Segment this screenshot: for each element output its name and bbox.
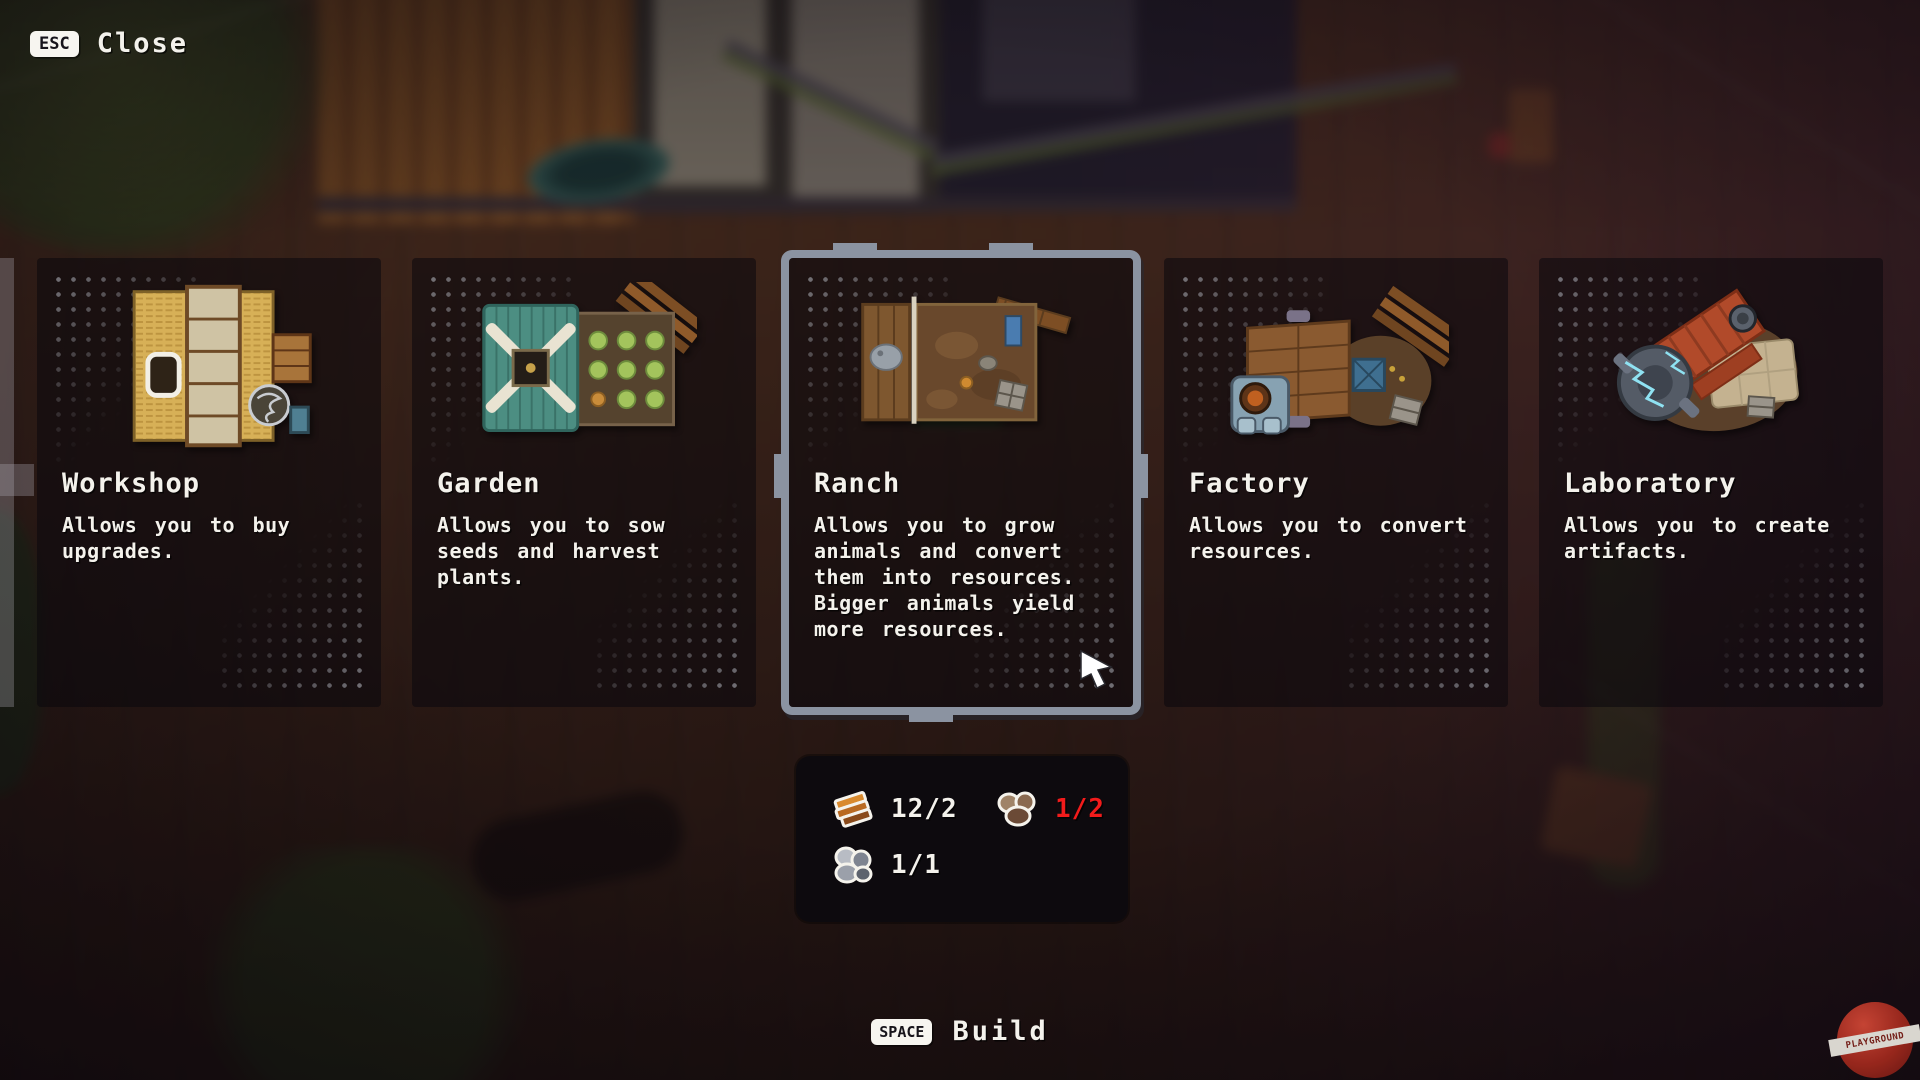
workshop-building-illustration xyxy=(37,272,381,462)
cost-item-stone: 1/1 xyxy=(830,842,941,888)
card-title: Factory xyxy=(1189,468,1310,499)
selection-frame-tab xyxy=(774,454,782,498)
card-title: Garden xyxy=(437,468,541,499)
gray-rocks-icon xyxy=(830,842,876,888)
card-description: Allows you to convert resources. xyxy=(1189,512,1490,564)
laboratory-building-illustration xyxy=(1539,272,1883,462)
close-button[interactable]: ESC Close xyxy=(30,28,188,59)
brown-rocks-icon xyxy=(994,786,1040,832)
factory-building-illustration xyxy=(1164,272,1508,462)
card-title: Ranch xyxy=(814,468,900,499)
garden-building-illustration xyxy=(412,272,756,462)
cost-item-hide: 1/2 xyxy=(994,786,1105,832)
card-title: Workshop xyxy=(62,468,200,499)
selection-frame-tab xyxy=(909,714,953,722)
wood-planks-icon xyxy=(830,786,876,832)
card-description: Allows you to grow animals and convert t… xyxy=(814,512,1115,642)
build-card-factory[interactable]: Factory Allows you to convert resources. xyxy=(1164,258,1508,707)
build-card-laboratory[interactable]: Laboratory Allows you to create artifact… xyxy=(1539,258,1883,707)
esc-key-badge: ESC xyxy=(30,31,79,57)
card-description: Allows you to buy upgrades. xyxy=(62,512,363,564)
build-card-garden[interactable]: Garden Allows you to sow seeds and harve… xyxy=(412,258,756,707)
close-label: Close xyxy=(97,28,188,59)
build-button[interactable]: SPACE Build xyxy=(0,1016,1920,1047)
build-cost-panel: 12/2 1/2 1/1 xyxy=(796,756,1128,922)
selection-frame-tab xyxy=(989,243,1033,251)
card-description: Allows you to sow seeds and harvest plan… xyxy=(437,512,738,590)
card-title: Laboratory xyxy=(1564,468,1737,499)
build-card-ranch[interactable]: Ranch Allows you to grow animals and con… xyxy=(789,258,1133,707)
selection-frame-tab xyxy=(833,243,877,251)
card-description: Allows you to create artifacts. xyxy=(1564,512,1865,564)
build-card-workshop[interactable]: Workshop Allows you to buy upgrades. xyxy=(37,258,381,707)
build-label: Build xyxy=(952,1016,1048,1047)
cost-item-label: 1/1 xyxy=(891,850,941,880)
build-menu-carousel: Workshop Allows you to buy upgrades. xyxy=(0,258,1920,707)
ranch-building-illustration xyxy=(789,272,1133,462)
selection-frame-tab xyxy=(1140,454,1148,498)
cost-item-label: 12/2 xyxy=(891,794,958,824)
space-key-badge: SPACE xyxy=(871,1019,932,1045)
cost-item-wood: 12/2 xyxy=(830,786,958,832)
playground-watermark-logo: PLAYGROUND xyxy=(1837,1002,1913,1078)
cost-item-label: 1/2 xyxy=(1055,794,1105,824)
